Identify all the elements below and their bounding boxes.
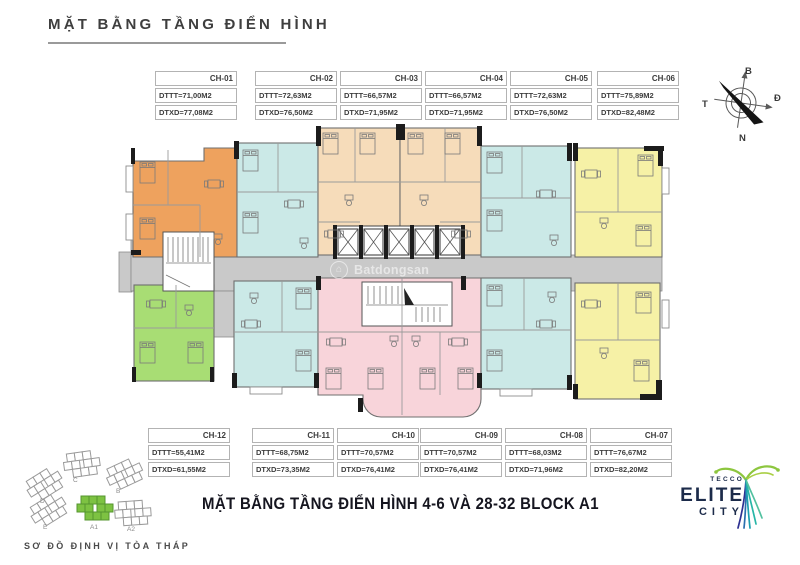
stair-core-left — [163, 232, 214, 291]
floor-subtitle: MẶT BẰNG TẦNG ĐIỂN HÌNH 4-6 VÀ 28-32 BLO… — [202, 494, 599, 514]
siteplan-caption: SƠ ĐỒ ĐỊNH VỊ TÒA THÁP — [24, 541, 190, 551]
elevator-bank — [333, 225, 465, 259]
building-a1-highlighted — [77, 496, 113, 520]
label-ch-09: CH-09 DTTT=70,57M2 DTXD=76,41M2 — [420, 428, 502, 479]
title-underline — [48, 42, 286, 44]
siteplan-map: D C B E A1 A2 — [15, 445, 175, 540]
label-ch-08: CH-08 DTTT=68,03M2 DTXD=71,96M2 — [505, 428, 587, 479]
watermark: ⌂ Batdongsan — [330, 261, 429, 279]
building-b — [103, 456, 146, 493]
floor-plan-poster: MẶT BẰNG TẦNG ĐIỂN HÌNH B Đ T N CH-01 DT… — [0, 0, 800, 565]
svg-text:D: D — [40, 498, 45, 505]
svg-text:A1: A1 — [90, 524, 98, 531]
svg-text:E: E — [43, 524, 48, 531]
building-c — [62, 450, 101, 479]
page-title: MẶT BẰNG TẦNG ĐIỂN HÌNH — [48, 16, 330, 33]
unit-ch-08 — [481, 278, 571, 389]
svg-text:Đ: Đ — [774, 93, 781, 104]
watermark-house-icon: ⌂ — [330, 261, 348, 279]
unit-ch-12 — [134, 285, 214, 381]
compass-needle — [714, 81, 769, 126]
logo-tree-icon — [700, 440, 800, 540]
svg-text:A2: A2 — [127, 526, 135, 533]
unit-ch-06 — [575, 148, 662, 257]
label-ch-11: CH-11 DTTT=68,75M2 DTXD=73,35M2 — [252, 428, 334, 479]
svg-text:N: N — [739, 133, 746, 144]
svg-text:T: T — [702, 99, 708, 110]
svg-text:B: B — [745, 66, 752, 77]
building-a2 — [114, 500, 152, 526]
compass-icon: B Đ T N — [698, 58, 784, 144]
svg-text:B: B — [116, 488, 120, 495]
svg-text:C: C — [73, 477, 78, 484]
label-ch-10: CH-10 DTTT=70,57M2 DTXD=76,41M2 — [337, 428, 419, 479]
label-ch-07: CH-07 DTTT=76,67M2 DTXD=82,20M2 — [590, 428, 672, 479]
unit-ch-02 — [237, 143, 318, 257]
stair-core-center — [362, 282, 452, 326]
